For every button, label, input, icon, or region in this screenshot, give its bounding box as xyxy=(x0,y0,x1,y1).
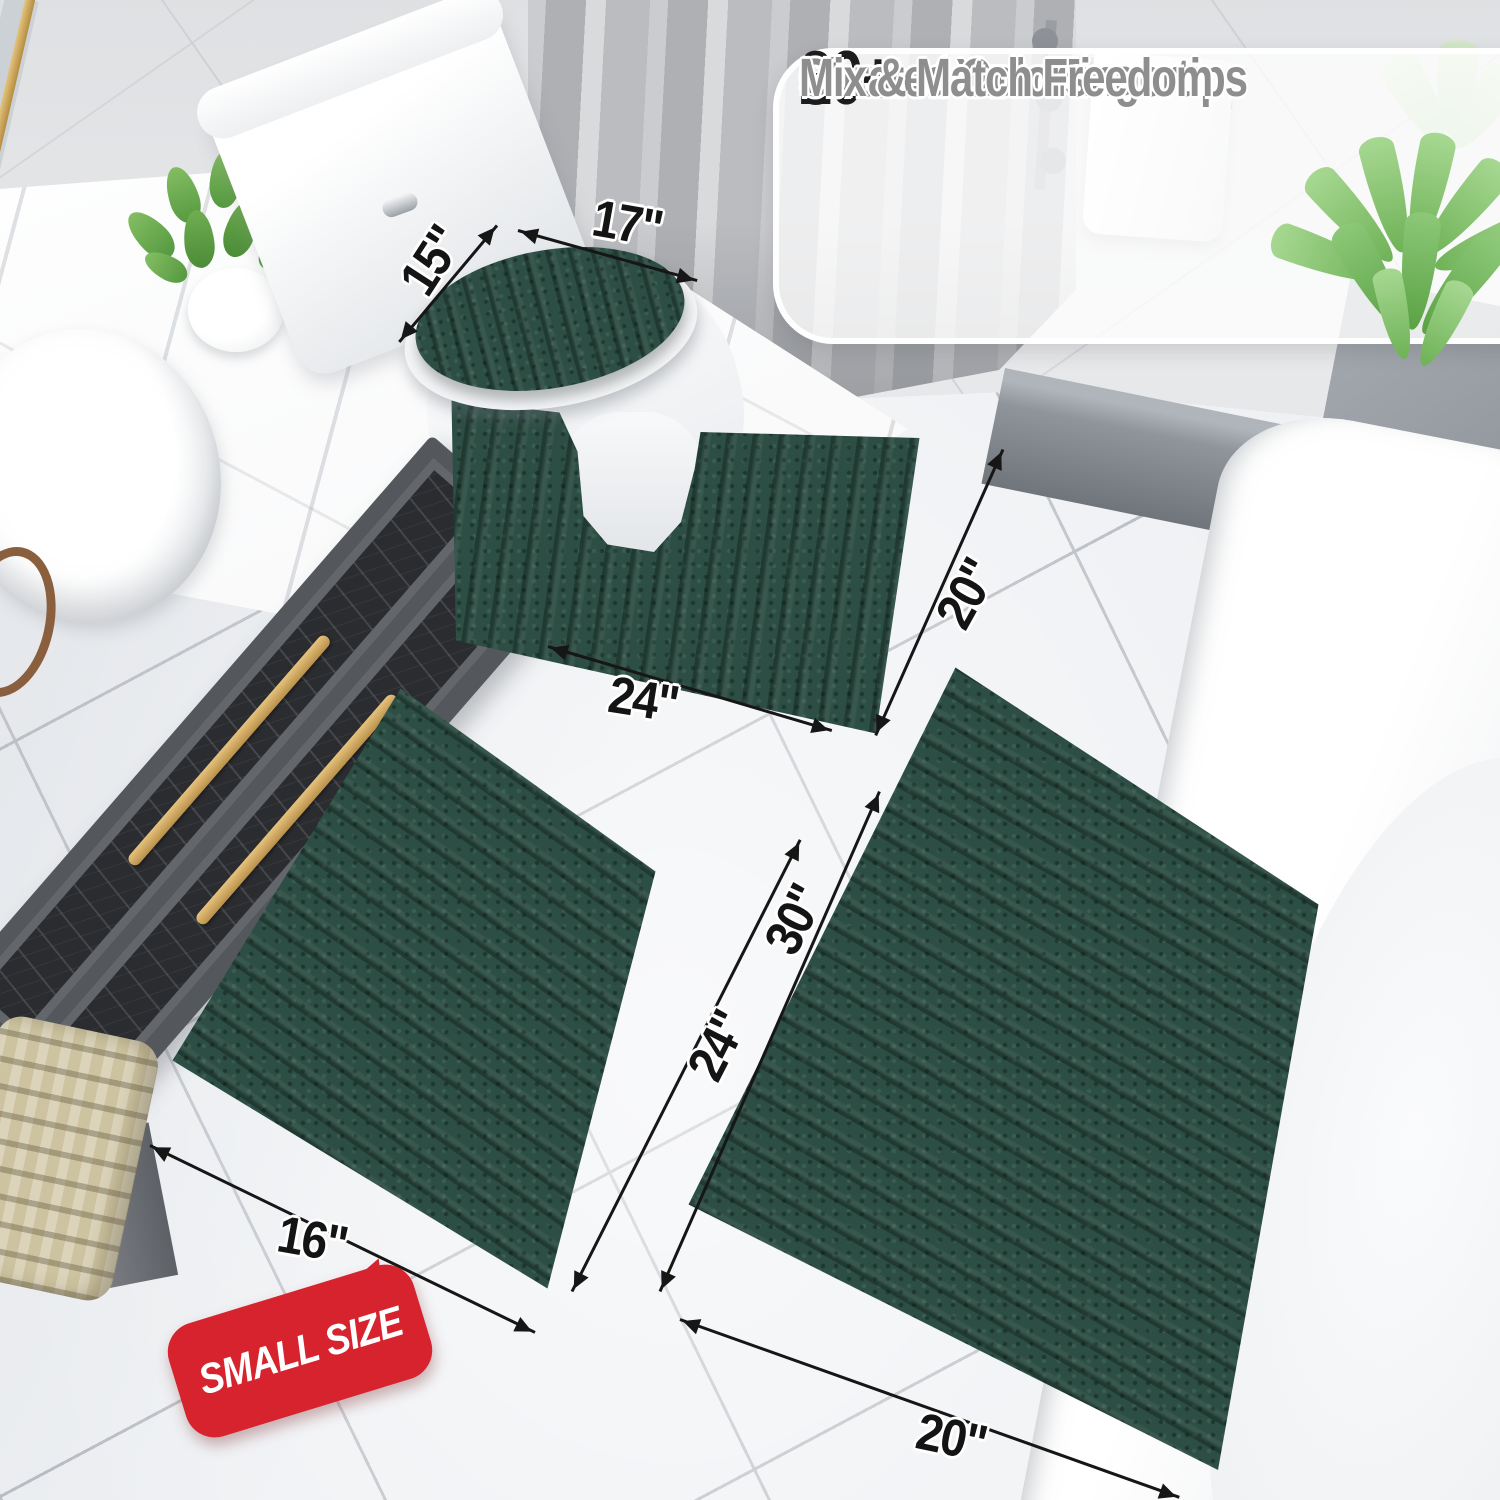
small-size-label: SMALL SIZE xyxy=(192,1297,407,1404)
dim-label-lid-width: 17" xyxy=(589,192,666,255)
feature-label: Mix & Match Freedom xyxy=(799,47,1212,109)
dim-label-large-width: 20" xyxy=(912,1405,990,1470)
product-image: 15" 17" 24" 20" 30" 24" 16" 20" ✔ 20+ Si… xyxy=(0,0,1500,1500)
dim-label-small-width: 16" xyxy=(274,1208,351,1271)
right-plant xyxy=(1310,128,1500,378)
dim-label-contour-width: 24" xyxy=(605,669,681,731)
